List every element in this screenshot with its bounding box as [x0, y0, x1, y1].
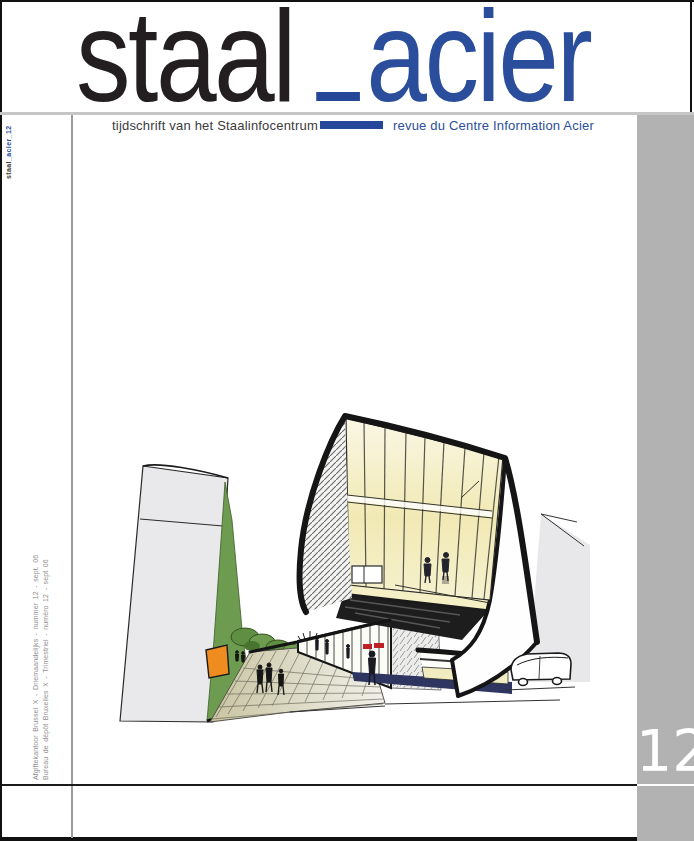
- building-outline: [299, 416, 537, 642]
- masthead: staalacier: [76, 0, 590, 121]
- border-right-top: [690, 0, 692, 114]
- vertical-rule: [71, 115, 73, 838]
- green-landscape: [206, 482, 301, 721]
- orange-sign: [206, 645, 229, 678]
- border-bottom: [0, 837, 694, 841]
- red-accent: [363, 644, 372, 649]
- car-sketch: [511, 653, 571, 686]
- right-wall: [452, 458, 537, 696]
- ground-glazing: [298, 619, 391, 688]
- figures-in-glass: [424, 553, 449, 585]
- masthead-word-staal: staal: [76, 0, 294, 129]
- tagline-french: revue du Centre Information Acier: [393, 118, 594, 133]
- pedestrian-figures: [236, 651, 285, 695]
- plaza: [210, 642, 385, 722]
- masthead-underscore-bar: [316, 92, 360, 101]
- spine-title-staal: staal: [5, 161, 12, 179]
- glass-facade: [346, 418, 503, 603]
- right-building-sketch: [528, 514, 590, 682]
- postal-line-dutch: Afgiftekantoor Brussel X - Driemaandelij…: [31, 555, 41, 780]
- footer-rule: [2, 784, 637, 786]
- masthead-word-acier: acier: [366, 0, 590, 129]
- magazine-cover: staalacier tijdschrift van het Staalinfo…: [0, 0, 694, 841]
- navy-plinth: [352, 672, 512, 694]
- lower-slab: [418, 648, 508, 684]
- entrance-figure: [369, 651, 376, 685]
- postal-line-french: Bureau de dépôt Bruxelles X - Trimestrie…: [41, 555, 51, 780]
- left-building-sketch: [120, 465, 228, 722]
- hatched-left-face: [300, 416, 352, 612]
- issue-number: 12: [636, 723, 692, 780]
- recessed-wall: [390, 612, 441, 690]
- cantilever-soffit: [336, 594, 488, 640]
- border-left: [0, 0, 2, 841]
- sparkle-lines: [294, 631, 324, 648]
- entrance-edge: [250, 620, 390, 652]
- ground-lines: [290, 687, 575, 712]
- tagline-dutch: tijdschrift van het Staalinfocentrum: [112, 118, 318, 133]
- footer-rule-on-band: [637, 784, 694, 786]
- spine-postal-info: Afgiftekantoor Brussel X - Driemaandelij…: [31, 555, 50, 780]
- spine-title: staal_acier_12: [4, 126, 13, 180]
- glass-fascia: [344, 583, 496, 611]
- tagline-divider-bar: [320, 121, 383, 129]
- red-accent: [374, 643, 384, 648]
- spine-title-acier: _acier_12: [5, 126, 12, 162]
- bush-cluster: [231, 628, 301, 656]
